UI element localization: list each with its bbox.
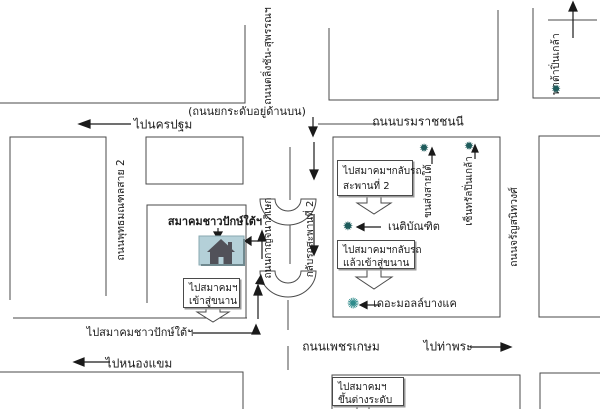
star-icon-central-pinklao: ✹ [464, 140, 474, 152]
arrow-borom-down [309, 117, 317, 136]
block-center-small [146, 137, 243, 184]
arrow-to-nakhon-pathom-left [79, 120, 131, 128]
thai-directions-map: (ถนนยกระดับอยู่ด้านบน) ไปนครปฐม ถนนบรมรา… [0, 0, 600, 409]
road-kanchanaphisek-label: ถนนกาญจนาภิเษก [264, 198, 274, 279]
arrow-to-nong-khaem-left [74, 358, 110, 366]
arrow-northbound-2 [254, 285, 262, 319]
arrow-southbound-1 [310, 142, 318, 179]
fat-arrow-box2 [356, 268, 392, 289]
star-icon-pata-pinklao: ✹ [551, 83, 561, 95]
central-pinklao-label: เซ็นทรัลปิ่นเกล้า [465, 156, 475, 226]
uturn-bridge-2-label: กลับรถสะพานที่ 2 [306, 201, 316, 278]
instruction-line: ขึ้นต่างระดับ [338, 394, 399, 407]
block-top-right [533, 8, 600, 98]
to-nong-khaem-label: ไปหนองแขม [106, 357, 173, 370]
instruction-line: ไปสมาคมฯกลับรถ [343, 164, 408, 179]
road-phutthamonthon-sai2-label: ถนนพุทธมณฑลสาย 2 [116, 159, 127, 260]
fat-arrow-box1 [357, 196, 391, 214]
the-mall-bangkae-label: เดอะมอลล์บางแค [373, 298, 457, 310]
star-icon-the-mall-bangkae: ✺ [347, 297, 360, 312]
road-charansanitwong-label: ถนนจรัญสนิทวงศ์ [509, 187, 520, 267]
instruction-line: ไปสมาคมฯ [338, 381, 399, 394]
netibandit-label: เนติบัณฑิต [388, 221, 440, 233]
instruction-line: เข้าสู่ขนาน [189, 295, 235, 308]
arrow-enter-association [245, 237, 259, 245]
instruction-box-uturn-parallel: ไปสมาคมฯกลับรถ แล้วเข้าสู่ขนาน [337, 240, 415, 269]
block-far-right [539, 136, 600, 317]
instruction-line: แล้วเข้าสู่ขนาน [343, 257, 410, 270]
block-top-middle [329, 10, 498, 100]
star-icon-southern-bus-terminal: ✹ [419, 142, 429, 154]
instruction-line: ไปสมาคมฯกลับรถ [343, 244, 410, 257]
to-association-label: ไปสมาคมชาวปักษ์ใต้ฯ [87, 327, 194, 339]
instruction-line: ไปสมาคมฯ [189, 282, 235, 295]
arrow-association-turn-up [193, 325, 260, 334]
star-icon-netibandit: ✹ [343, 221, 354, 234]
arrow-netibandit-left [357, 224, 381, 231]
road-taling-chan-suphan-label: ถนนตลิ่งชัน-สุพรรณฯ [263, 7, 274, 104]
instruction-box-enter-parallel: ไปสมาคมฯ เข้าสู่ขนาน [183, 278, 240, 308]
block-top-left [0, 25, 245, 103]
road-borommaratchachonnani-label: ถนนบรมราชชนนี [372, 115, 464, 128]
destination-house [199, 236, 244, 265]
to-tha-phra-label: ไปท่าพระ [423, 340, 472, 353]
road-phetkasem-label: ถนนเพชรเกษม [302, 340, 379, 353]
instruction-box-uturn-bridge2: ไปสมาคมฯกลับรถ สะพานที่ 2 [337, 160, 413, 196]
block-bottom-left [0, 372, 243, 409]
southern-bus-terminal-label: ขนส่งสายใต้ [424, 164, 434, 218]
instruction-line: สะพานที่ 2 [343, 179, 408, 194]
to-nakhon-pathom-label: ไปนครปฐม [134, 118, 192, 131]
elevated-road-note: (ถนนยกระดับอยู่ด้านบน) [188, 106, 306, 118]
instruction-box-up-interchange: ไปสมาคมฯ ขึ้นต่างระดับ [332, 377, 404, 406]
block-bottom-right [540, 373, 600, 409]
arrow-to-tha-phra-right [470, 343, 511, 351]
arrow-bus-terminal-up [429, 148, 435, 164]
fat-arrow-box3 [197, 307, 229, 322]
block-middle-left [10, 137, 106, 300]
association-title: สมาคมชาวปักษ์ใต้ฯ [168, 216, 262, 228]
